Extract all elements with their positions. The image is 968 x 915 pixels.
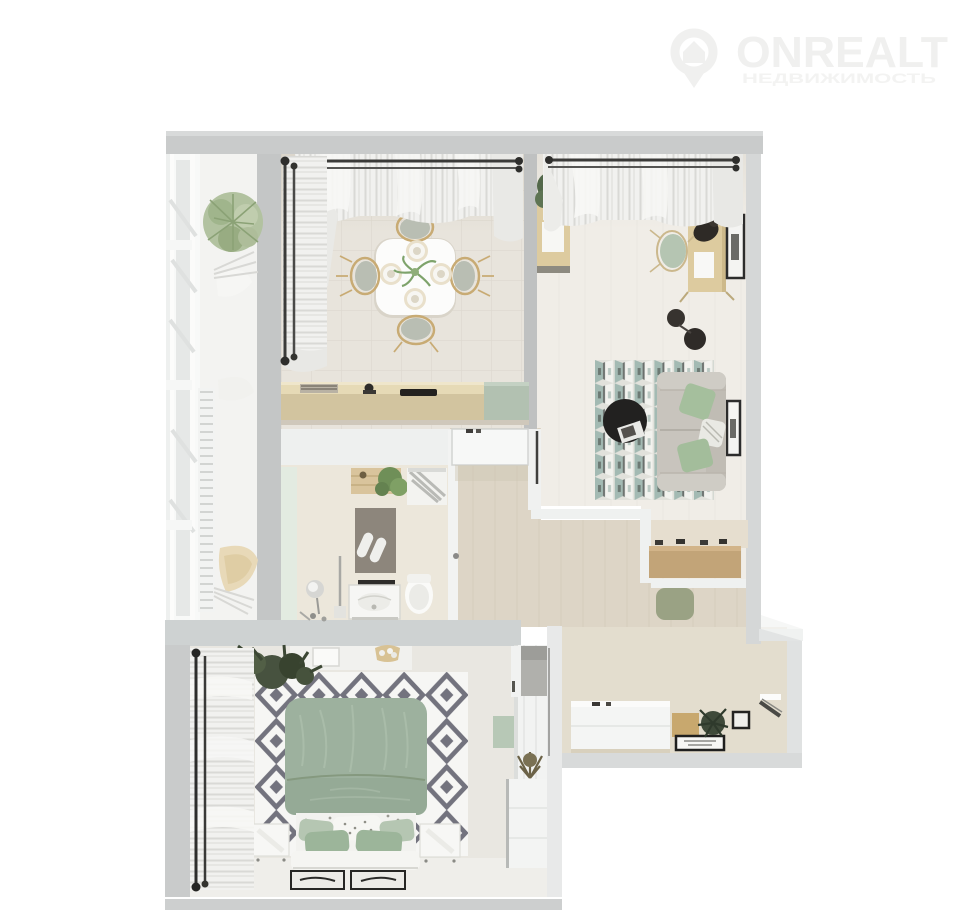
svg-text:НЕДВИЖИМОСТЬ: НЕДВИЖИМОСТЬ (742, 70, 936, 86)
